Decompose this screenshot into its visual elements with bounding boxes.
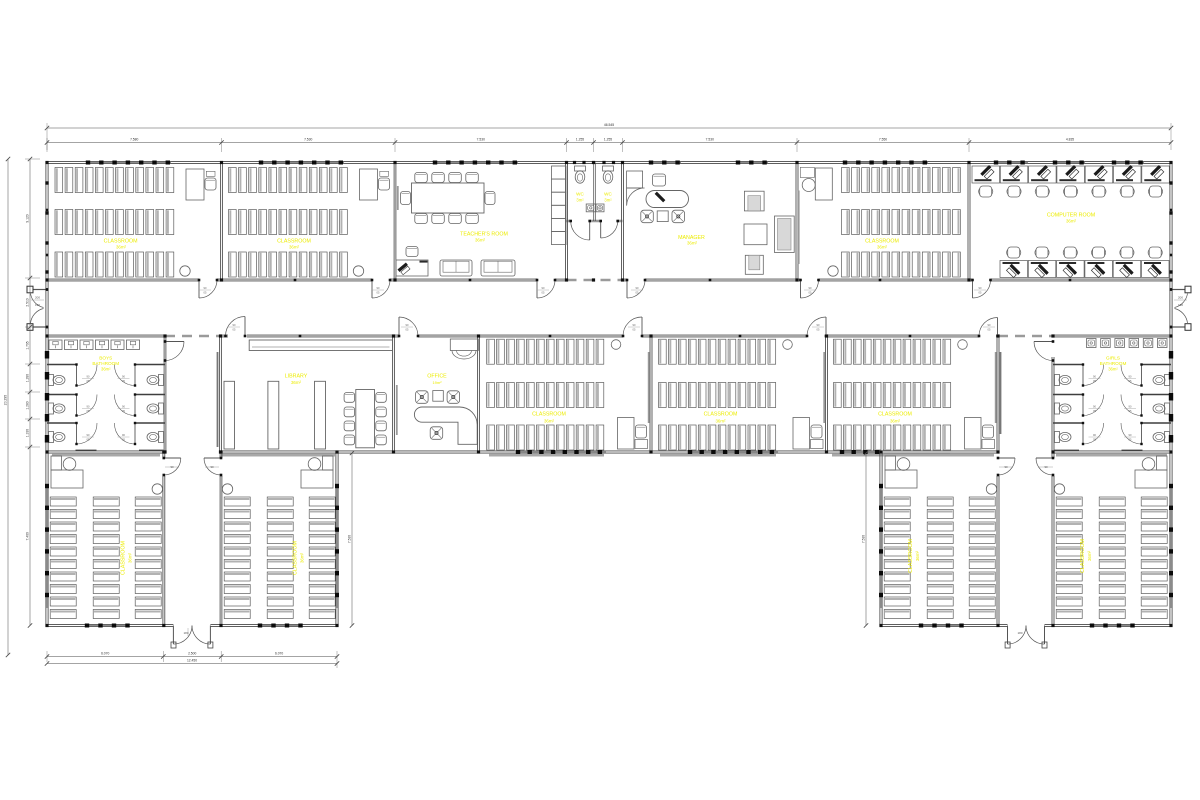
- svg-text:CLASSROOM: CLASSROOM: [293, 541, 299, 575]
- svg-text:46.545: 46.545: [604, 123, 614, 127]
- svg-text:36m²: 36m²: [544, 419, 555, 424]
- svg-text:36m²: 36m²: [291, 380, 302, 385]
- svg-text:19m²: 19m²: [432, 380, 442, 385]
- svg-text:36m²: 36m²: [715, 419, 726, 424]
- svg-text:BATHROOM: BATHROOM: [92, 361, 119, 366]
- svg-text:36m²: 36m²: [687, 240, 698, 245]
- svg-text:2.500: 2.500: [188, 652, 196, 656]
- svg-text:4.835: 4.835: [1066, 138, 1074, 142]
- svg-text:7.530: 7.530: [304, 138, 312, 142]
- svg-text:1.330: 1.330: [26, 429, 30, 437]
- svg-text:200: 200: [35, 296, 40, 300]
- svg-text:1.280: 1.280: [26, 374, 30, 382]
- svg-text:CLASSROOM: CLASSROOM: [1080, 539, 1086, 573]
- svg-text:7.530: 7.530: [706, 138, 714, 142]
- svg-text:LIBRARY: LIBRARY: [285, 374, 308, 380]
- svg-text:36m²: 36m²: [1066, 219, 1077, 224]
- svg-text:CLASSROOM: CLASSROOM: [704, 412, 738, 418]
- svg-text:1.280: 1.280: [26, 401, 30, 409]
- svg-text:WC: WC: [604, 192, 612, 197]
- svg-text:190: 190: [35, 303, 40, 307]
- svg-text:90: 90: [210, 465, 214, 469]
- svg-text:BOYS: BOYS: [99, 356, 112, 361]
- svg-text:3m²: 3m²: [604, 198, 612, 203]
- svg-text:190: 190: [1178, 303, 1183, 307]
- svg-text:7.580: 7.580: [130, 138, 138, 142]
- svg-text:9.120: 9.120: [26, 214, 30, 222]
- svg-text:CLASSROOM: CLASSROOM: [878, 412, 912, 418]
- svg-text:90: 90: [1004, 465, 1008, 469]
- svg-text:7.550: 7.550: [879, 138, 887, 142]
- svg-text:OFFICE: OFFICE: [427, 374, 447, 380]
- svg-text:36m²: 36m²: [128, 552, 133, 563]
- svg-text:36m²: 36m²: [101, 367, 111, 372]
- svg-text:3m²: 3m²: [576, 198, 584, 203]
- svg-text:90: 90: [1044, 465, 1048, 469]
- svg-text:20.295: 20.295: [4, 395, 8, 405]
- svg-text:CLASSROOM: CLASSROOM: [532, 412, 566, 418]
- svg-text:1.255: 1.255: [604, 138, 612, 142]
- svg-text:7.400: 7.400: [25, 532, 29, 540]
- svg-text:36m²: 36m²: [890, 419, 901, 424]
- svg-text:36m²: 36m²: [1087, 550, 1092, 561]
- svg-text:36m²: 36m²: [300, 552, 305, 563]
- svg-text:CLASSROOM: CLASSROOM: [121, 541, 127, 575]
- svg-text:7.530: 7.530: [348, 535, 352, 543]
- svg-text:36m²: 36m²: [289, 244, 300, 249]
- svg-text:WC: WC: [576, 192, 584, 197]
- svg-text:200: 200: [1178, 296, 1183, 300]
- svg-text:36m²: 36m²: [915, 550, 920, 561]
- svg-text:36m²: 36m²: [877, 244, 888, 249]
- svg-text:90: 90: [170, 465, 174, 469]
- svg-text:7.530: 7.530: [477, 138, 485, 142]
- svg-text:1.795: 1.795: [26, 341, 30, 349]
- svg-text:2.510: 2.510: [26, 298, 30, 306]
- svg-text:36m²: 36m²: [475, 238, 486, 243]
- svg-text:36m²: 36m²: [116, 244, 127, 249]
- svg-text:180: 180: [1017, 631, 1022, 635]
- svg-text:7.530: 7.530: [862, 535, 866, 543]
- svg-text:6.070: 6.070: [101, 652, 109, 656]
- svg-text:6.070: 6.070: [275, 652, 283, 656]
- svg-text:BATHROOM: BATHROOM: [1100, 361, 1127, 366]
- svg-text:1.255: 1.255: [576, 138, 584, 142]
- svg-text:12.450: 12.450: [187, 659, 197, 663]
- svg-text:CLASSROOM: CLASSROOM: [908, 539, 914, 573]
- svg-text:GIRLS: GIRLS: [1106, 356, 1120, 361]
- svg-text:36m²: 36m²: [1108, 367, 1118, 372]
